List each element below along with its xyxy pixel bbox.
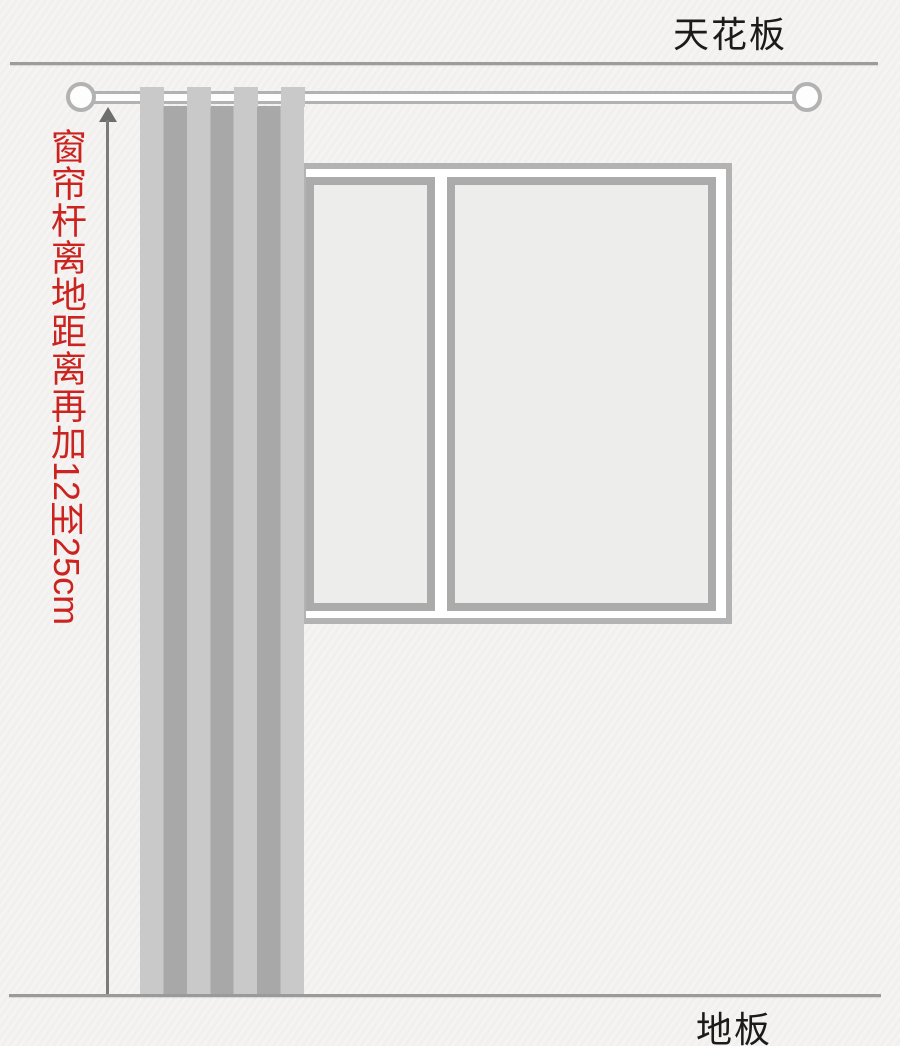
window bbox=[300, 163, 732, 624]
curtain-tab bbox=[234, 87, 258, 107]
measurement-arrow-line bbox=[106, 120, 109, 994]
ceiling-label: 天花板 bbox=[640, 6, 820, 58]
rod-finial-right-icon bbox=[792, 82, 822, 112]
curtain-tab bbox=[281, 87, 305, 107]
window-pane-left bbox=[306, 177, 435, 611]
measurement-label-value: 12至25cm bbox=[46, 461, 87, 625]
diagram-canvas: 天花板 窗帘杆离地距离再加12至25cm 地板 bbox=[0, 0, 900, 1046]
ceiling-line bbox=[10, 62, 878, 65]
curtain bbox=[140, 106, 304, 994]
floor-line bbox=[9, 994, 881, 997]
rod-finial-left-icon bbox=[66, 82, 96, 112]
measurement-label-cjk: 窗帘杆离地距离再加 bbox=[46, 128, 87, 461]
floor-label: 地板 bbox=[642, 1001, 826, 1046]
window-pane-right bbox=[447, 177, 716, 611]
curtain-tab bbox=[140, 87, 164, 107]
measurement-label: 窗帘杆离地距离再加12至25cm bbox=[44, 128, 88, 625]
curtain-tab bbox=[187, 87, 211, 107]
